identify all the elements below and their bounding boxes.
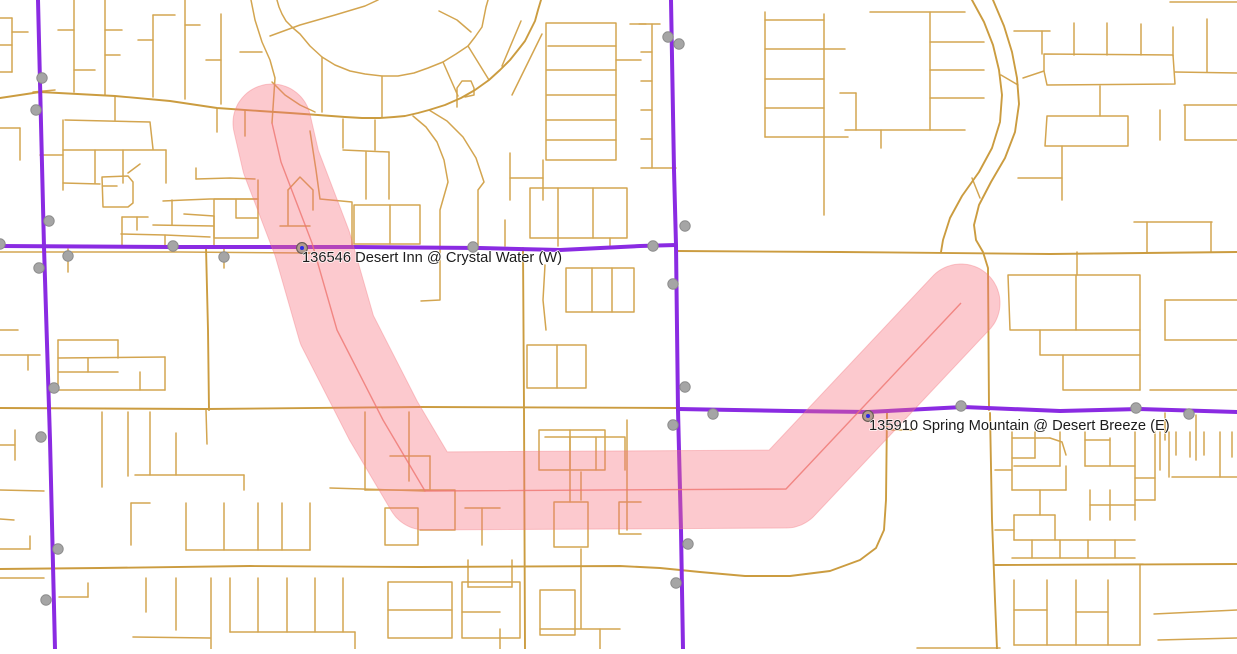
svg-text:136546 Desert Inn @ Crystal Wa: 136546 Desert Inn @ Crystal Water (W): [302, 250, 562, 266]
svg-text:135910 Spring Mountain @ Deser: 135910 Spring Mountain @ Desert Breeze (…: [869, 418, 1170, 434]
